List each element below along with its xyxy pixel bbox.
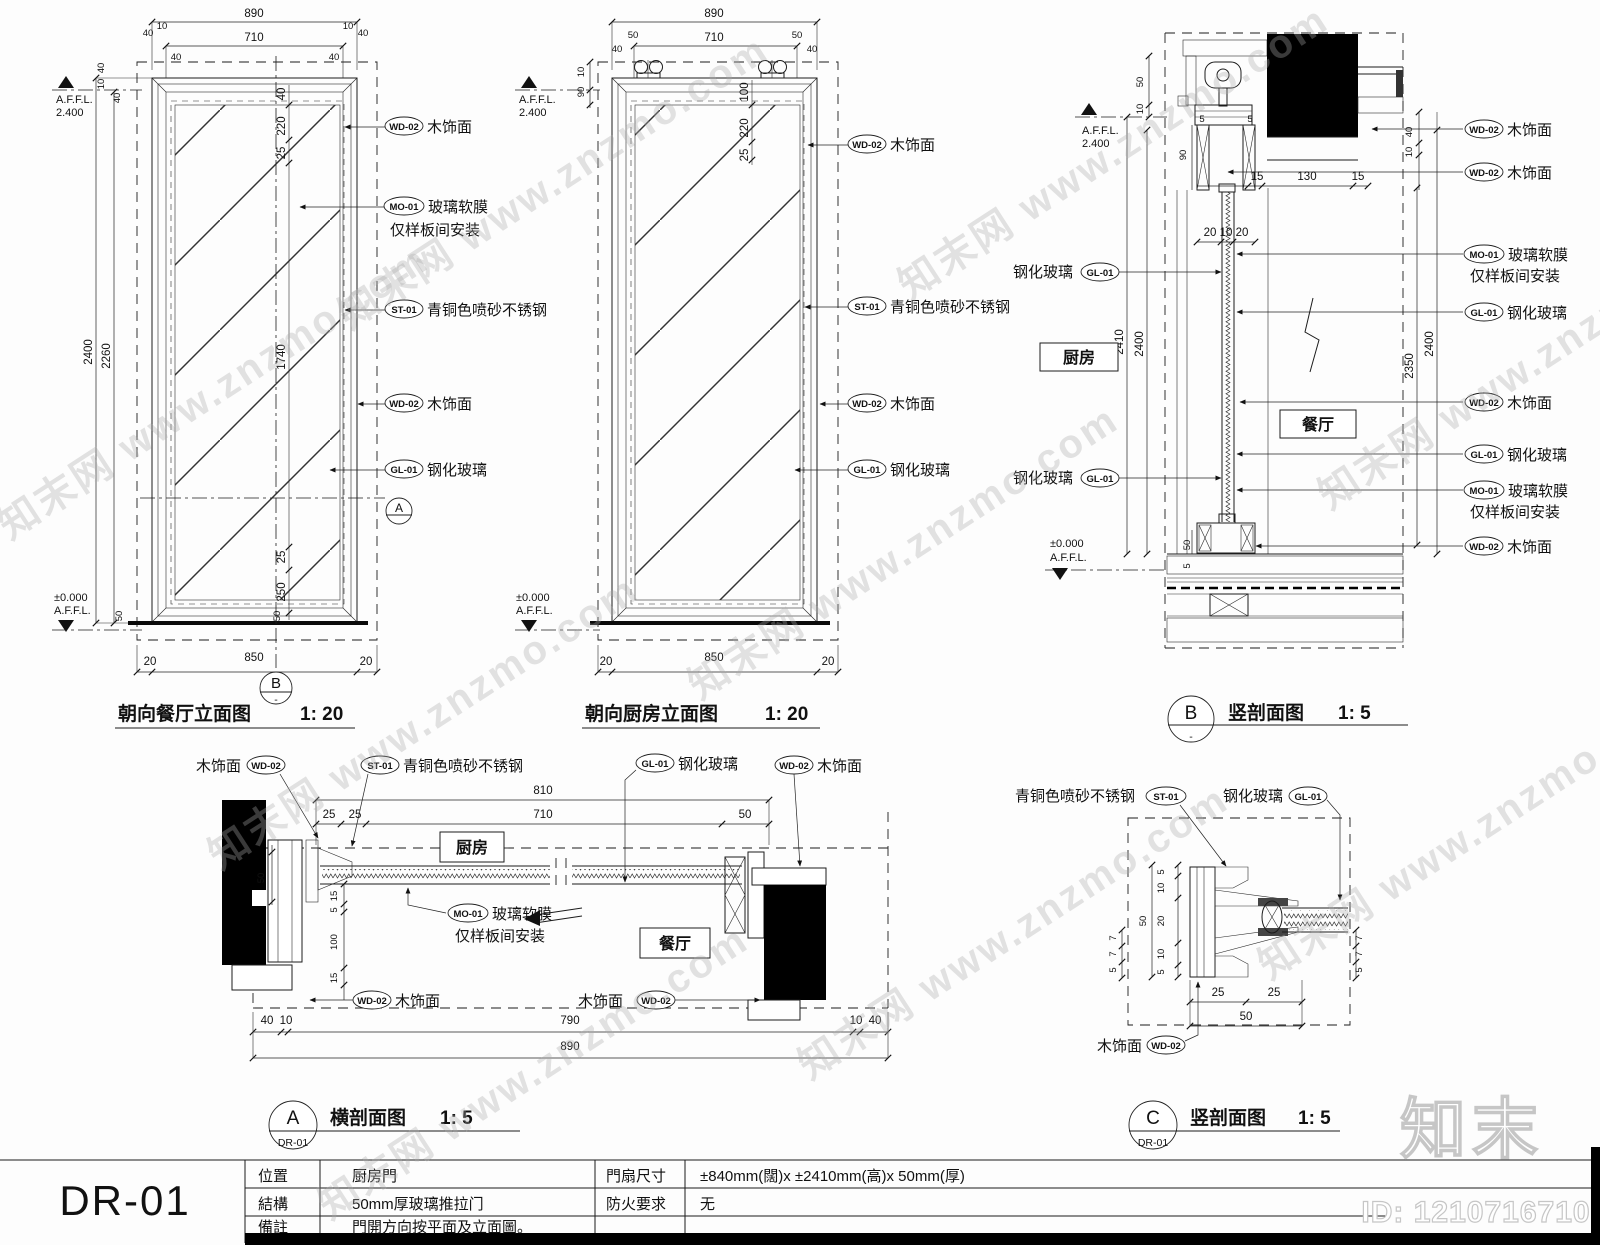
- svg-text:1: 5: 1: 5: [440, 1108, 473, 1129]
- svg-text:餐厅: 餐厅: [1301, 415, 1334, 434]
- dim-facing: 40: [1404, 127, 1415, 138]
- asset-id: ID: 1210716710: [1361, 1196, 1590, 1229]
- dim-stile: 40: [171, 52, 182, 63]
- svg-text:MO-01: MO-01: [1469, 486, 1499, 497]
- brand-logo: 知末: [1400, 1092, 1544, 1166]
- view-title: 朝向餐厅立面图: [118, 702, 251, 725]
- dim-opening: 710: [533, 809, 552, 821]
- svg-text:GL-01: GL-01: [642, 759, 670, 770]
- svg-text:1: 5: 1: 5: [1298, 1108, 1331, 1129]
- dim: 790: [560, 1015, 579, 1027]
- svg-text:B: B: [271, 675, 281, 692]
- svg-text:-: -: [274, 694, 278, 706]
- level-affl-label: A.F.F.L.: [1050, 552, 1087, 564]
- svg-text:钢化玻璃: 钢化玻璃: [1223, 788, 1283, 805]
- dim: 5: [1108, 967, 1119, 972]
- svg-text:WD-02: WD-02: [389, 399, 419, 410]
- dim-clear-width: 850: [244, 652, 263, 664]
- tb-value: 无: [700, 1196, 715, 1213]
- level-affl-label: A.F.F.L.: [54, 605, 91, 617]
- dim-reveal: 15: [1352, 171, 1365, 183]
- section-marker-a: A: [386, 498, 412, 524]
- dim-gap: 10: [1404, 147, 1415, 158]
- svg-text:厨房: 厨房: [1063, 348, 1095, 367]
- svg-text:WD-02: WD-02: [1151, 1041, 1181, 1052]
- svg-text:WD-02: WD-02: [1469, 168, 1499, 179]
- dim-track-height: 50: [1135, 77, 1146, 88]
- dim-edge: 50: [739, 809, 752, 821]
- dim: 40: [261, 1015, 274, 1027]
- svg-text:GL-01: GL-01: [1087, 268, 1115, 279]
- svg-text:木饰面: 木饰面: [890, 396, 935, 413]
- tb-key: 結構: [258, 1196, 288, 1213]
- svg-text:ST-01: ST-01: [367, 761, 393, 772]
- svg-text:MO-01: MO-01: [453, 909, 483, 920]
- level-affl-value: 2.400: [56, 107, 84, 119]
- svg-text:WD-02: WD-02: [1469, 542, 1499, 553]
- dim-overall: 890: [560, 1041, 579, 1053]
- svg-text:WD-02: WD-02: [852, 399, 882, 410]
- svg-text:B: B: [1185, 703, 1198, 724]
- svg-text:DR-01: DR-01: [1138, 1137, 1169, 1149]
- svg-text:C: C: [1146, 1108, 1160, 1129]
- dim-stile: 40: [329, 52, 340, 63]
- dim-panel: 220: [276, 116, 288, 135]
- dim-opening-width: 710: [244, 32, 263, 44]
- dim-panel-gap: 25: [276, 147, 288, 160]
- dim: 7: [1108, 951, 1119, 956]
- dim-track: 90: [576, 87, 587, 98]
- svg-text:WD-02: WD-02: [1469, 398, 1499, 409]
- room-label-dining: 餐厅: [1280, 410, 1356, 438]
- dim-gap: 10: [1135, 104, 1146, 115]
- dim-panel-gap: 25: [739, 149, 751, 162]
- dim-head2: 40: [112, 93, 123, 104]
- dim-floor: 50: [114, 611, 125, 622]
- dim-leaf-thickness: 50: [256, 873, 267, 884]
- dim: 5: [1156, 869, 1167, 874]
- dim-edge: 20: [600, 656, 613, 668]
- drawing-sheet: 890 710 40 10 10 40 40 40 40 10 40 2400 …: [0, 0, 1600, 1245]
- dim-leaf-height: 2260: [101, 343, 113, 369]
- svg-text:A: A: [395, 501, 403, 515]
- svg-text:MO-01: MO-01: [1469, 250, 1499, 261]
- dim-panel: 220: [739, 118, 751, 137]
- svg-text:GL-01: GL-01: [391, 465, 419, 476]
- dim-width: 810: [533, 785, 552, 797]
- svg-text:横剖面图: 横剖面图: [330, 1106, 406, 1129]
- dim: 7: [1354, 935, 1365, 940]
- dim-gap: 10: [343, 21, 354, 32]
- cad-canvas: 890 710 40 10 10 40 40 40 40 10 40 2400 …: [0, 0, 1600, 1245]
- dim-door-height: 2400: [83, 339, 95, 365]
- dim: 20: [1156, 916, 1167, 927]
- dim-height: 2400: [1424, 331, 1436, 357]
- dim-jamb: 25: [323, 809, 336, 821]
- svg-text:ST-01: ST-01: [1153, 792, 1179, 803]
- callout-wd02: WD-02 木饰面: [1465, 163, 1552, 182]
- callout-wd02: WD-02 木饰面: [1465, 393, 1552, 412]
- dim-overall-width: 890: [704, 8, 723, 20]
- svg-text:木饰面: 木饰面: [1097, 1038, 1142, 1055]
- svg-text:青铜色喷砂不锈钢: 青铜色喷砂不锈钢: [1015, 788, 1135, 805]
- dim-overall-width: 890: [244, 8, 263, 20]
- dim: 25: [1212, 987, 1225, 999]
- callout-wd02: WD-02 木饰面: [1465, 120, 1552, 139]
- svg-text:玻璃软膜: 玻璃软膜: [1508, 483, 1568, 500]
- level-affl-label: A.F.F.L.: [519, 94, 556, 106]
- level-affl-label: A.F.F.L.: [56, 94, 93, 106]
- view-scale: 1: 20: [765, 704, 808, 725]
- dim: 10: [850, 1015, 863, 1027]
- svg-text:钢化玻璃: 钢化玻璃: [1507, 447, 1567, 464]
- svg-text:WD-02: WD-02: [389, 122, 419, 133]
- dim-height: 2350: [1404, 353, 1416, 379]
- svg-text:WD-02: WD-02: [251, 761, 281, 772]
- dim-opening-width: 710: [704, 32, 723, 44]
- dim-jamb: 40: [358, 28, 369, 39]
- dim: 5: [329, 907, 340, 912]
- tb-value: ±840mm(闊)x ±2410mm(高)x 50mm(厚): [700, 1168, 965, 1185]
- svg-text:仅样板间安装: 仅样板间安装: [390, 221, 480, 239]
- dim-leaf-thickness: 20 10 20: [1204, 227, 1249, 239]
- svg-text:GL-01: GL-01: [1471, 308, 1499, 319]
- callout-wd02: WD-02 木饰面: [1465, 537, 1552, 556]
- svg-text:GL-01: GL-01: [1087, 474, 1115, 485]
- tb-value: 門開方向按平面及立面圖。: [352, 1219, 532, 1236]
- svg-text:木饰面: 木饰面: [1507, 122, 1552, 139]
- svg-text:钢化玻璃: 钢化玻璃: [678, 756, 738, 773]
- svg-text:青铜色喷砂不锈钢: 青铜色喷砂不锈钢: [427, 302, 547, 319]
- dim-gap: 5: [1182, 563, 1193, 568]
- svg-text:WD-02: WD-02: [641, 996, 671, 1007]
- dim: 50: [1138, 916, 1149, 927]
- dim-head: 40: [96, 63, 107, 74]
- svg-text:青铜色喷砂不锈钢: 青铜色喷砂不锈钢: [403, 758, 523, 775]
- level-zero-value: ±0.000: [1050, 538, 1084, 550]
- room-label-kitchen: 厨房: [1040, 343, 1118, 371]
- svg-text:GL-01: GL-01: [854, 465, 882, 476]
- dim: 10: [1156, 949, 1167, 960]
- svg-text:厨房: 厨房: [456, 838, 488, 857]
- level-affl-label: A.F.F.L.: [1082, 125, 1119, 137]
- svg-text:竖剖面图: 竖剖面图: [1228, 701, 1304, 724]
- svg-text:WD-02: WD-02: [852, 140, 882, 151]
- svg-text:MO-01: MO-01: [389, 202, 419, 213]
- dim: 100: [329, 934, 340, 950]
- svg-text:木饰面: 木饰面: [1507, 539, 1552, 556]
- svg-text:-: -: [1189, 731, 1193, 743]
- svg-text:玻璃软膜: 玻璃软膜: [492, 906, 552, 923]
- level-affl-value: 2.400: [1082, 138, 1110, 150]
- dim-rail: 40: [276, 88, 288, 101]
- tb-key: 位置: [258, 1168, 288, 1185]
- svg-text:木饰面: 木饰面: [427, 396, 472, 413]
- dim-panel-gap: 25: [276, 551, 288, 564]
- svg-text:青铜色喷砂不锈钢: 青铜色喷砂不锈钢: [890, 299, 1010, 316]
- dim-stile: 40: [612, 44, 623, 55]
- dim-edge: 50: [792, 30, 803, 41]
- dim-stile: 40: [807, 44, 818, 55]
- svg-text:GL-01: GL-01: [1295, 792, 1323, 803]
- level-affl-label: A.F.F.L.: [516, 605, 553, 617]
- dim-head: 100: [739, 82, 751, 101]
- tb-key: 門扇尺寸: [606, 1168, 666, 1185]
- dim: 15: [329, 891, 340, 902]
- svg-text:钢化玻璃: 钢化玻璃: [1507, 305, 1567, 322]
- callout-gl01: GL-01 钢化玻璃: [1465, 303, 1567, 322]
- dim: 7: [1354, 951, 1365, 956]
- dim-jamb: 40: [143, 28, 154, 39]
- tb-value: 50mm厚玻璃推拉门: [352, 1196, 484, 1213]
- room-label-kitchen: 厨房: [440, 832, 504, 862]
- view-title: 朝向厨房立面图: [585, 702, 718, 725]
- dim-gap: 10: [157, 21, 168, 32]
- level-affl-value: 2.400: [519, 107, 547, 119]
- svg-text:木饰面: 木饰面: [817, 758, 862, 775]
- svg-text:ST-01: ST-01: [854, 302, 880, 313]
- svg-text:仅样板间安装: 仅样板间安装: [455, 927, 545, 945]
- svg-text:1: 5: 1: 5: [1338, 703, 1371, 724]
- dim-head-gap: 10: [96, 79, 107, 90]
- svg-text:竖剖面图: 竖剖面图: [1190, 1106, 1266, 1129]
- dim-edge: 20: [822, 656, 835, 668]
- svg-text:GL-01: GL-01: [1471, 450, 1499, 461]
- svg-text:钢化玻璃: 钢化玻璃: [1013, 470, 1073, 487]
- dim-edge: 50: [628, 30, 639, 41]
- svg-text:WD-02: WD-02: [1469, 125, 1499, 136]
- dim-lip: 5: [1199, 114, 1204, 125]
- dim-bottom-rail: 50: [1182, 540, 1193, 551]
- svg-text:木饰面: 木饰面: [427, 119, 472, 136]
- tb-key: 備註: [258, 1219, 288, 1236]
- dim-edge: 20: [360, 656, 373, 668]
- svg-text:木饰面: 木饰面: [578, 993, 623, 1010]
- dim: 10: [1156, 883, 1167, 894]
- svg-text:钢化玻璃: 钢化玻璃: [1013, 264, 1073, 281]
- callout-gl01: GL-01 钢化玻璃: [1465, 445, 1567, 464]
- svg-text:餐厅: 餐厅: [658, 934, 691, 953]
- dim-jamb: 25: [349, 809, 362, 821]
- tb-key: 防火要求: [606, 1196, 666, 1213]
- dim-edge: 20: [144, 656, 157, 668]
- tb-value: 厨房門: [352, 1168, 397, 1185]
- dim: 15: [329, 973, 340, 984]
- svg-text:木饰面: 木饰面: [890, 137, 935, 154]
- dim-reveal: 15: [1251, 171, 1264, 183]
- room-label-dining: 餐厅: [640, 928, 710, 958]
- dim: 7: [1108, 935, 1119, 940]
- svg-text:WD-02: WD-02: [357, 996, 387, 1007]
- svg-text:木饰面: 木饰面: [395, 993, 440, 1010]
- svg-text:ST-01: ST-01: [391, 305, 417, 316]
- svg-text:A: A: [287, 1108, 300, 1129]
- level-zero-value: ±0.000: [54, 592, 88, 604]
- dim: 50: [1240, 1011, 1253, 1023]
- svg-text:钢化玻璃: 钢化玻璃: [427, 462, 487, 479]
- dim-gap: 10: [576, 67, 587, 78]
- dim-glass-height: 1740: [276, 344, 288, 370]
- svg-text:DR-01: DR-01: [278, 1137, 309, 1149]
- svg-text:木饰面: 木饰面: [1507, 165, 1552, 182]
- svg-text:仅样板间安装: 仅样板间安装: [1470, 503, 1560, 521]
- dim-kick: 50: [272, 611, 283, 622]
- drawing-code: DR-01: [59, 1177, 190, 1224]
- view-scale: 1: 20: [300, 704, 343, 725]
- dim: 10: [280, 1015, 293, 1027]
- dim: 40: [869, 1015, 882, 1027]
- dim-lip: 5: [1247, 114, 1252, 125]
- svg-text:钢化玻璃: 钢化玻璃: [890, 462, 950, 479]
- level-zero-value: ±0.000: [516, 592, 550, 604]
- dim: 25: [1268, 987, 1281, 999]
- dim-head-height: 90: [1178, 150, 1189, 161]
- dim: 5: [1354, 967, 1365, 972]
- svg-text:玻璃软膜: 玻璃软膜: [1508, 247, 1568, 264]
- dim-bottom-rail: 250: [276, 582, 288, 601]
- svg-text:WD-02: WD-02: [779, 761, 809, 772]
- dim-height: 2400: [1134, 331, 1146, 357]
- svg-text:仅样板间安装: 仅样板间安装: [1470, 267, 1560, 285]
- svg-text:木饰面: 木饰面: [1507, 395, 1552, 412]
- dim: 5: [1156, 969, 1167, 974]
- svg-text:木饰面: 木饰面: [196, 758, 241, 775]
- dim-beam: 130: [1297, 171, 1316, 183]
- dim-clear-width: 850: [704, 652, 723, 664]
- svg-text:玻璃软膜: 玻璃软膜: [428, 199, 488, 216]
